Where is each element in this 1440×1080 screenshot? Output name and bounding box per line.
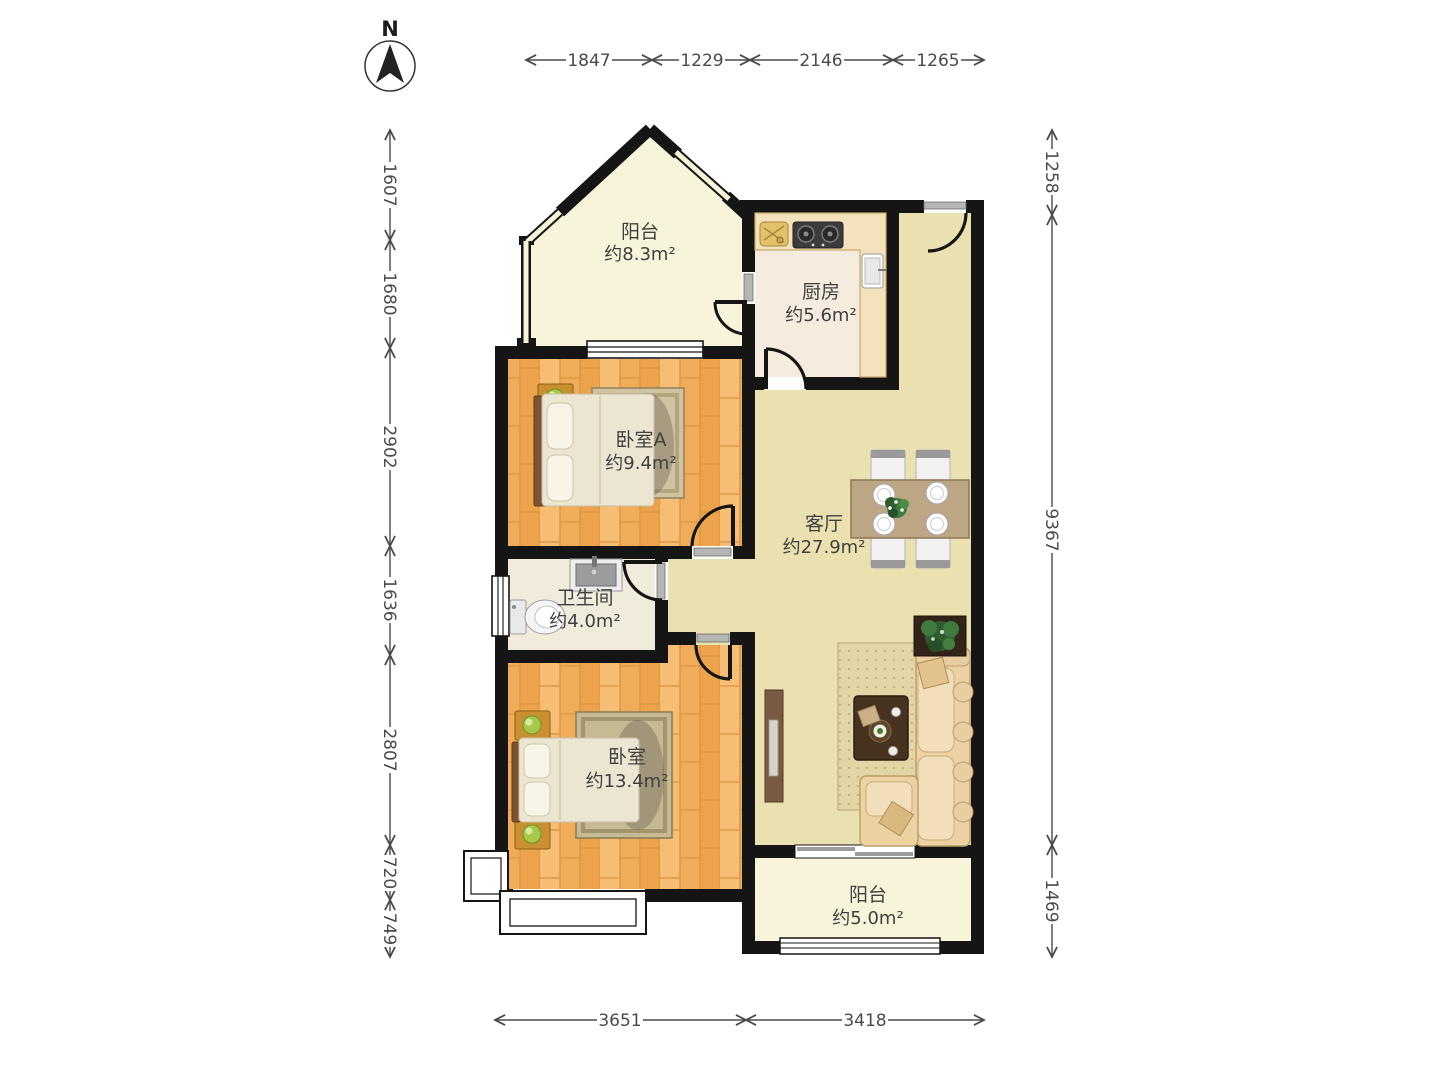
coffee-table xyxy=(854,696,908,760)
dining-chair xyxy=(871,450,905,482)
dim-bottom-2: 3418 xyxy=(843,1011,886,1031)
label-bathroom-name: 卫生间 xyxy=(556,587,613,609)
nightstand xyxy=(515,711,550,740)
dim-top-1: 1847 xyxy=(567,51,610,71)
stove xyxy=(793,222,843,248)
plant-box xyxy=(914,616,966,656)
basket xyxy=(760,222,788,246)
dim-left-4: 1636 xyxy=(379,578,399,621)
sink-vanity xyxy=(570,556,622,591)
label-kitchen-area: 约5.6m² xyxy=(785,305,856,326)
dim-top: 1847 1229 2146 1265 xyxy=(526,51,984,71)
dim-right-2: 9367 xyxy=(1041,508,1061,551)
dim-left-5: 2807 xyxy=(379,728,399,771)
dim-left-7: 749 xyxy=(379,913,399,945)
compass-north-label: N xyxy=(381,17,399,41)
compass: N xyxy=(365,17,415,91)
floor-plan-page: 阳台 约8.3m² 厨房 约5.6m² 卧室A 约9.4m² 客厅 约27.9m… xyxy=(0,0,1440,1080)
dim-left-1: 1607 xyxy=(379,163,399,206)
dim-left-2: 1680 xyxy=(379,272,399,315)
bedroom-bay-window xyxy=(500,891,646,934)
label-bathroom-area: 约4.0m² xyxy=(549,611,620,632)
tv-cabinet xyxy=(765,690,783,802)
dim-right: 1258 9367 1469 xyxy=(1041,130,1061,957)
dim-bottom-1: 3651 xyxy=(598,1011,641,1031)
label-balcony-top-area: 约8.3m² xyxy=(604,244,675,265)
label-balcony-bottom-name: 阳台 xyxy=(849,884,887,906)
dim-top-4: 1265 xyxy=(916,51,959,71)
bathroom-window xyxy=(492,576,509,636)
floor-plan-svg: 阳台 约8.3m² 厨房 约5.6m² 卧室A 约9.4m² 客厅 约27.9m… xyxy=(0,0,1440,1080)
dim-left-3: 2902 xyxy=(379,425,399,468)
label-bedroom-a-name: 卧室A xyxy=(616,429,667,451)
kitchen-sink xyxy=(862,254,886,288)
dining-table xyxy=(851,480,969,538)
dining-chair xyxy=(916,450,950,482)
dim-top-2: 1229 xyxy=(680,51,723,71)
compass-needle-icon xyxy=(376,44,404,83)
dining-chair xyxy=(871,536,905,568)
nightstand xyxy=(515,820,550,849)
label-bedroom-area: 约13.4m² xyxy=(586,771,669,792)
label-living-area: 约27.9m² xyxy=(783,537,866,558)
label-balcony-top-name: 阳台 xyxy=(621,221,659,243)
dim-left-6: 720 xyxy=(379,857,399,889)
dim-left: 1607 1680 2902 1636 2807 720 749 xyxy=(379,130,399,957)
dim-right-1: 1258 xyxy=(1041,150,1061,193)
balcony-sliding-door xyxy=(795,845,915,858)
label-balcony-bottom-area: 约5.0m² xyxy=(832,908,903,929)
label-bedroom-a-area: 约9.4m² xyxy=(605,453,676,474)
bedroom-a-window xyxy=(587,341,703,358)
label-bedroom-name: 卧室 xyxy=(608,746,646,768)
label-living-name: 客厅 xyxy=(805,513,843,535)
dining-chair xyxy=(916,536,950,568)
dim-top-3: 2146 xyxy=(799,51,842,71)
label-kitchen-name: 厨房 xyxy=(802,281,840,303)
balcony-bottom-window xyxy=(780,938,940,954)
dim-bottom: 3651 3418 xyxy=(495,1011,984,1031)
dim-right-3: 1469 xyxy=(1041,879,1061,922)
